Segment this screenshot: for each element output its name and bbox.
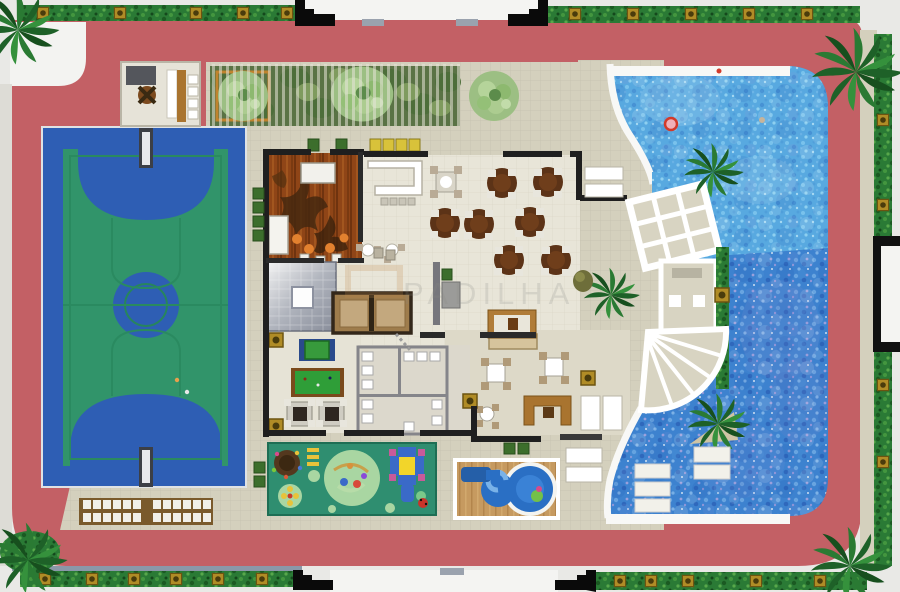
svg-text:PADILHA: PADILHA xyxy=(403,276,575,311)
